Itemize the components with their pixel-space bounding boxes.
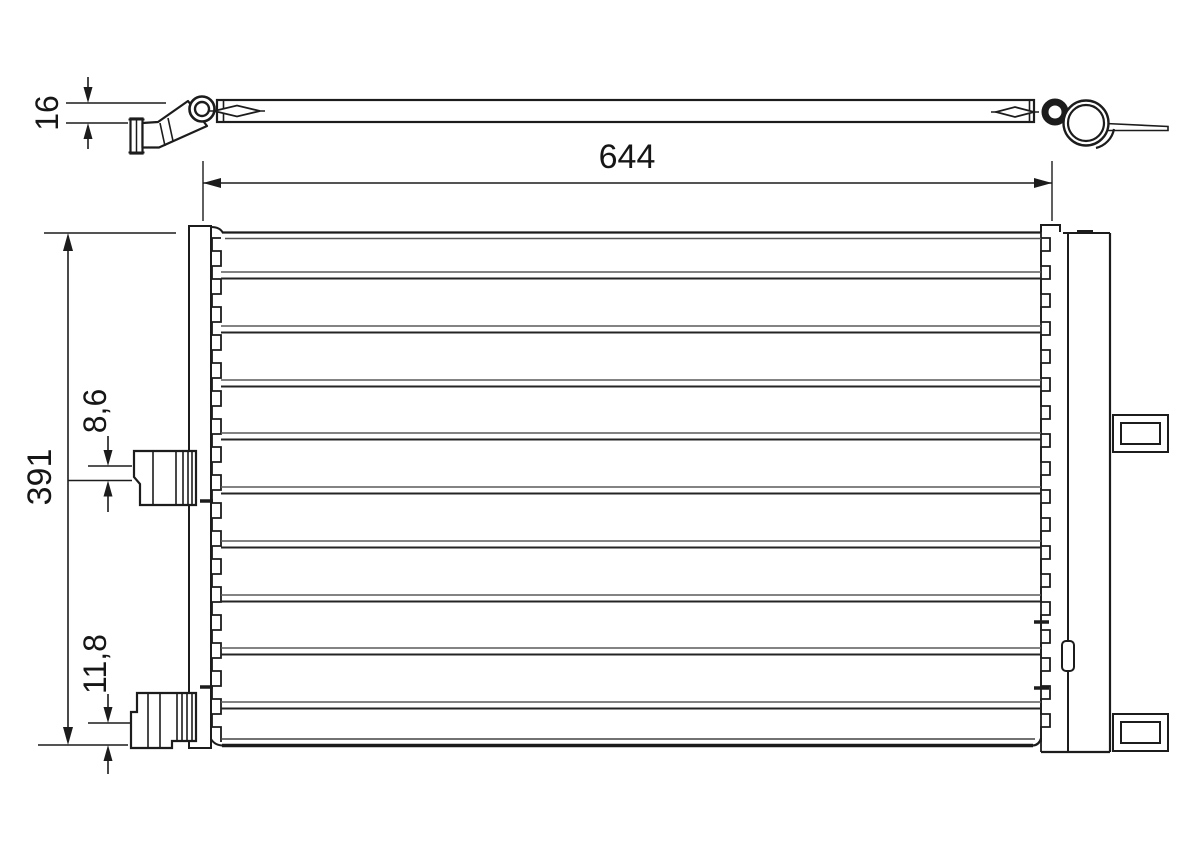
profile-small-ring (1045, 102, 1065, 122)
arrowhead-down (104, 707, 113, 723)
arrowhead-left (203, 178, 221, 188)
right-top-cap (1041, 225, 1093, 232)
arrowhead-up (63, 233, 73, 251)
arrowhead-right (1034, 178, 1052, 188)
condenser-drawing: 16 644 (0, 0, 1200, 843)
receiver-drier-tank (1041, 233, 1110, 752)
dim-label-644: 644 (599, 138, 656, 176)
dim-label-16: 16 (29, 95, 65, 131)
arrowhead-up (104, 481, 113, 497)
technical-drawing-canvas: 16 644 (0, 0, 1200, 843)
fin-edge-left (212, 238, 221, 742)
tank-sight-glass (1062, 641, 1074, 671)
arrowhead-up (84, 123, 93, 139)
dim-label-11-8: 11,8 (77, 634, 113, 694)
dim-label-8-6: 8,6 (77, 389, 113, 433)
core-top-header (211, 227, 1041, 239)
dim-lower-connector: 11,8 (77, 634, 130, 774)
bracket-lower (1113, 714, 1168, 751)
connector-block-lower (131, 693, 196, 748)
dim-label-391: 391 (21, 449, 59, 506)
front-view (131, 225, 1168, 752)
profile-bar (217, 100, 1034, 122)
arrowhead-down (63, 727, 73, 745)
bracket-upper (1113, 415, 1168, 452)
fin-edge-right (1041, 238, 1050, 742)
dim-core-width: 644 (203, 138, 1052, 221)
profile-left-pipe-ring (190, 97, 215, 122)
arrowhead-up (104, 745, 113, 761)
arrowhead-down (104, 450, 113, 466)
profile-large-ring (1064, 101, 1115, 149)
dim-upper-connector: 8,6 (68, 389, 132, 512)
arrowhead-down (84, 87, 93, 103)
core-bottom-header (211, 739, 1041, 746)
core-tubes (221, 272, 1041, 709)
connector-block-upper (134, 451, 196, 505)
